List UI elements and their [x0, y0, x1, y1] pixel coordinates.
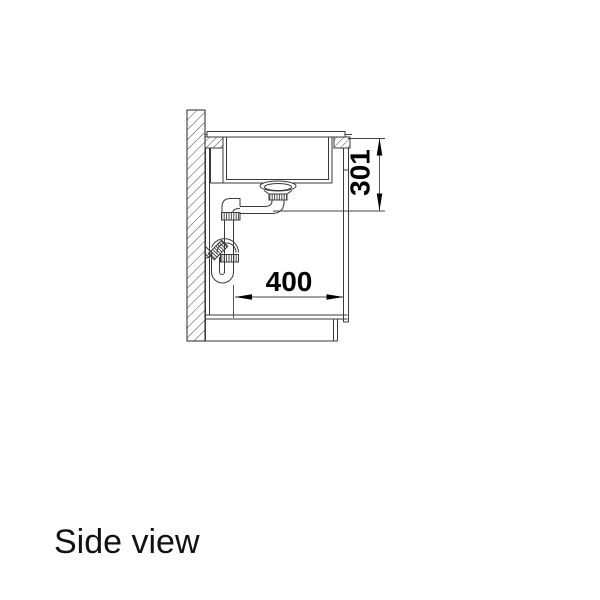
siphon-trap — [205, 199, 272, 284]
elbow-coupling-nut — [222, 213, 241, 221]
cabinet-plinth — [205, 319, 338, 341]
sink-basin — [223, 137, 332, 183]
sink-basin-outer-wall — [223, 137, 332, 183]
side-view-diagram: 400 301 Side view — [0, 0, 600, 600]
dimension-width-arrow-right — [327, 294, 344, 300]
dimension-height-label: 301 — [345, 149, 376, 196]
strainer-locknut — [269, 194, 287, 200]
strainer-tailpiece — [264, 200, 284, 214]
trap-coupling-nut — [221, 255, 239, 263]
dimension-width: 400 — [234, 266, 344, 318]
countertop-right-section — [334, 137, 350, 148]
cabinet-back-panel — [206, 148, 210, 341]
countertop — [205, 132, 352, 149]
dimension-height-arrow-bottom — [377, 194, 383, 211]
sink-rim — [207, 132, 345, 138]
dimension-width-arrow-left — [235, 294, 252, 300]
wall-section — [187, 110, 205, 341]
drain-elbow — [222, 199, 240, 213]
cabinet-left-rail — [211, 148, 224, 183]
drain-strainer — [260, 181, 296, 214]
technical-drawing-page: 400 301 Side view — [0, 0, 600, 600]
dimension-height-arrow-top — [377, 139, 383, 156]
drawing-title: Side view — [54, 523, 200, 561]
horizontal-drain-pipe — [240, 207, 271, 214]
countertop-left-section — [205, 137, 223, 148]
cabinet-bottom-shelf — [205, 315, 348, 319]
dimension-width-label: 400 — [266, 266, 313, 297]
sink-basin-inner-wall — [227, 137, 329, 180]
wall-hatch — [187, 110, 205, 341]
